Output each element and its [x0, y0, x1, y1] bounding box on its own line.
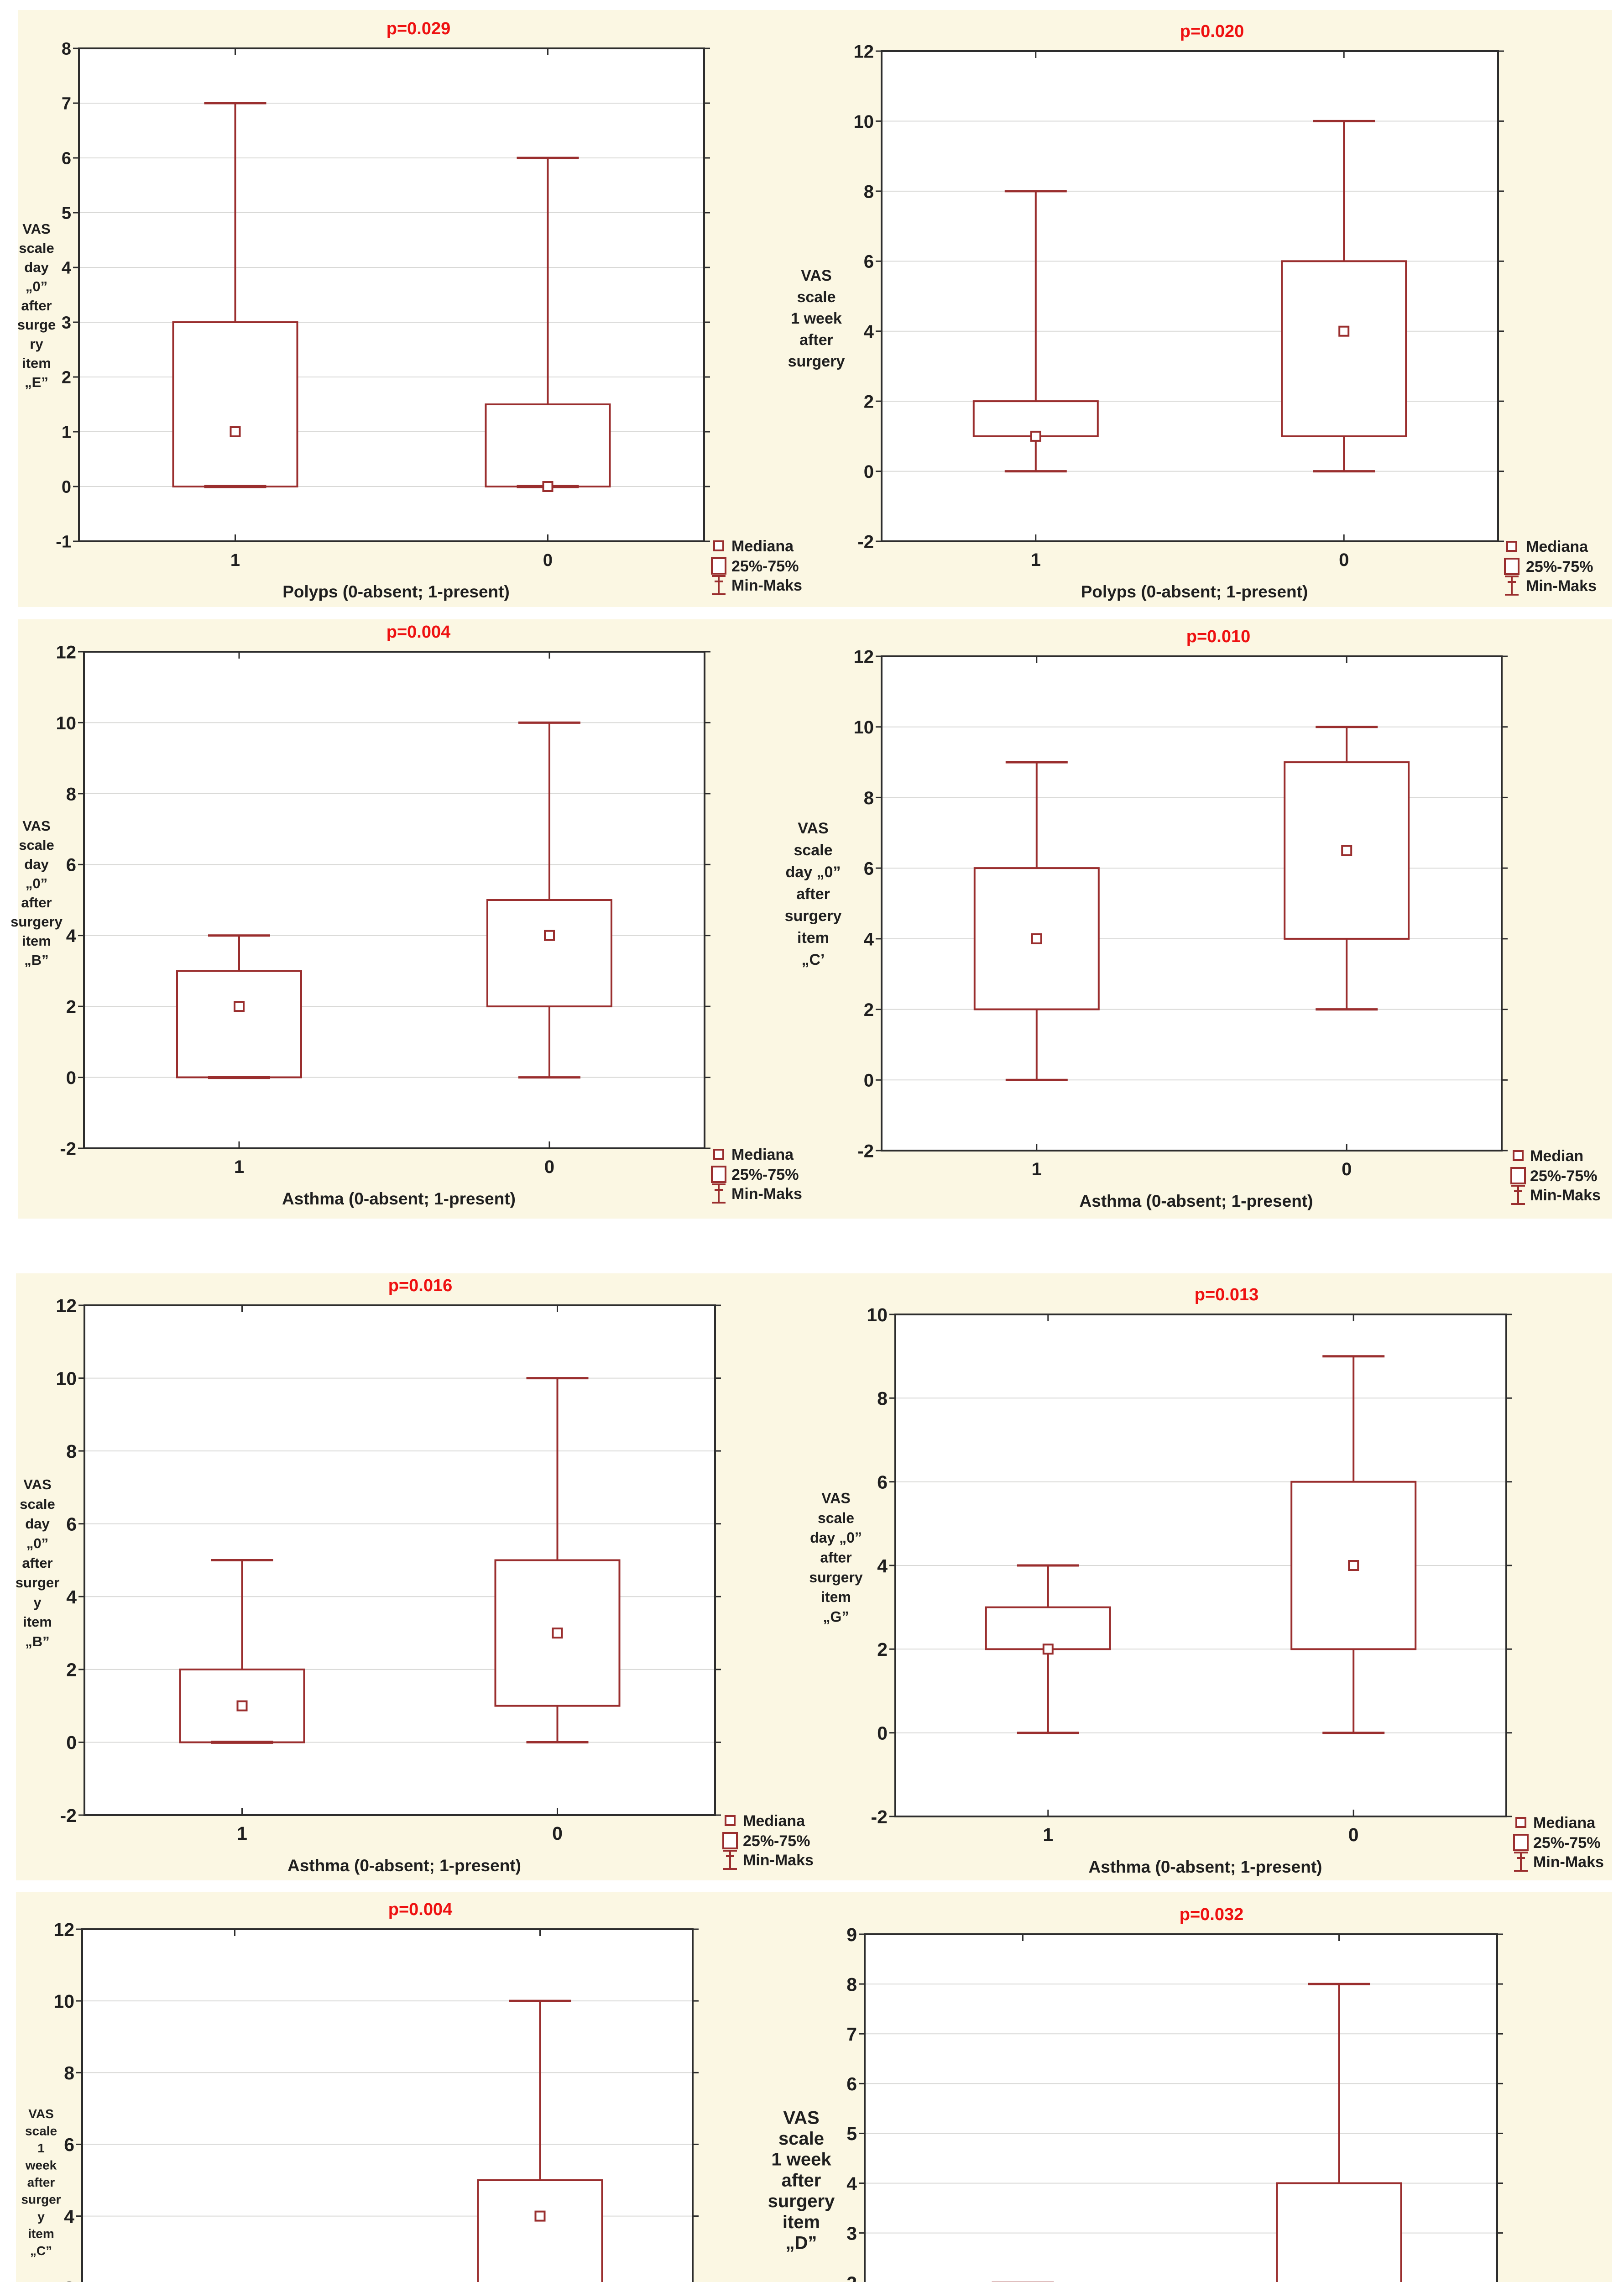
svg-text:8: 8	[62, 40, 71, 59]
svg-text:6: 6	[66, 855, 76, 875]
svg-text:Min-Maks: Min-Maks	[1526, 577, 1597, 595]
svg-text:2: 2	[66, 1659, 77, 1680]
svg-text:25%-75%: 25%-75%	[1526, 558, 1593, 576]
svg-text:Mediana: Mediana	[743, 1812, 805, 1830]
svg-text:10: 10	[56, 1368, 77, 1389]
svg-text:1: 1	[237, 1823, 247, 1844]
svg-text:8: 8	[64, 2062, 74, 2083]
svg-text:1: 1	[230, 551, 240, 570]
svg-text:Polyps (0-absent; 1-present): Polyps (0-absent; 1-present)	[1081, 582, 1308, 601]
svg-text:12: 12	[854, 647, 874, 667]
svg-text:2: 2	[64, 2278, 74, 2282]
svg-text:Min-Maks: Min-Maks	[743, 1852, 814, 1869]
svg-text:4: 4	[864, 929, 874, 949]
svg-text:p=0.016: p=0.016	[388, 1276, 453, 1295]
svg-text:8: 8	[877, 1388, 888, 1409]
svg-text:2: 2	[846, 2273, 857, 2282]
svg-text:p=0.004: p=0.004	[388, 1900, 453, 1919]
svg-text:4: 4	[877, 1555, 888, 1576]
svg-text:0: 0	[544, 1157, 554, 1177]
svg-text:10: 10	[854, 717, 874, 738]
svg-text:0: 0	[62, 478, 71, 497]
svg-text:2: 2	[864, 392, 874, 412]
svg-text:1: 1	[1031, 550, 1041, 570]
svg-text:25%-75%: 25%-75%	[1530, 1167, 1597, 1185]
svg-text:4: 4	[846, 2173, 857, 2194]
svg-text:4: 4	[64, 2206, 74, 2227]
svg-text:6: 6	[877, 1471, 888, 1492]
svg-text:Min-Maks: Min-Maks	[1533, 1853, 1604, 1871]
svg-text:Mediana: Mediana	[1526, 538, 1588, 555]
svg-text:p=0.029: p=0.029	[386, 19, 451, 38]
svg-text:0: 0	[66, 1068, 76, 1088]
svg-text:10: 10	[56, 713, 77, 733]
svg-text:0: 0	[864, 1071, 874, 1091]
svg-text:6: 6	[62, 149, 71, 168]
svg-text:4: 4	[66, 1586, 77, 1607]
svg-text:VASscaleday„0”aftersurgeryitem: VASscaleday„0”aftersurgeryitem„E”	[17, 221, 56, 390]
svg-text:Mediana: Mediana	[1533, 1814, 1596, 1832]
svg-text:10: 10	[854, 112, 874, 132]
svg-text:Asthma (0-absent; 1-present): Asthma (0-absent; 1-present)	[282, 1189, 516, 1208]
svg-text:p=0.020: p=0.020	[1180, 22, 1244, 41]
svg-text:-2: -2	[857, 1141, 874, 1161]
svg-text:0: 0	[552, 1823, 563, 1844]
svg-text:8: 8	[66, 784, 76, 804]
svg-text:-2: -2	[60, 1139, 76, 1159]
svg-text:p=0.013: p=0.013	[1195, 1285, 1259, 1304]
svg-text:4: 4	[864, 322, 874, 342]
svg-text:1: 1	[1043, 1824, 1053, 1845]
svg-text:25%-75%: 25%-75%	[743, 1832, 810, 1850]
svg-text:7: 7	[62, 94, 71, 114]
svg-text:5: 5	[846, 2123, 857, 2144]
svg-text:4: 4	[66, 926, 77, 946]
svg-text:0: 0	[1339, 550, 1349, 570]
svg-text:-2: -2	[60, 1805, 77, 1826]
svg-text:Asthma (0-absent; 1-present): Asthma (0-absent; 1-present)	[1080, 1192, 1313, 1210]
svg-text:0: 0	[66, 1732, 77, 1753]
svg-text:8: 8	[864, 182, 874, 202]
svg-text:25%-75%: 25%-75%	[731, 558, 799, 575]
svg-text:10: 10	[867, 1304, 888, 1325]
svg-text:8: 8	[66, 1441, 77, 1462]
svg-text:Polyps (0-absent; 1-present): Polyps (0-absent; 1-present)	[282, 582, 510, 601]
svg-text:8: 8	[864, 788, 874, 808]
svg-text:6: 6	[864, 252, 874, 272]
svg-text:0: 0	[1342, 1159, 1352, 1179]
svg-text:7: 7	[846, 2024, 857, 2045]
svg-text:2: 2	[877, 1639, 888, 1660]
svg-text:2: 2	[864, 1000, 874, 1020]
svg-text:12: 12	[56, 1295, 77, 1316]
svg-text:1: 1	[234, 1157, 244, 1177]
svg-text:Mediana: Mediana	[731, 1146, 794, 1163]
svg-text:Min-Maks: Min-Maks	[1530, 1187, 1601, 1204]
svg-text:12: 12	[56, 642, 77, 662]
svg-text:0: 0	[543, 551, 553, 570]
svg-text:9: 9	[846, 1924, 857, 1945]
svg-text:Mediana: Mediana	[731, 538, 794, 555]
svg-text:8: 8	[846, 1974, 857, 1995]
svg-text:-1: -1	[56, 533, 71, 552]
svg-text:Median: Median	[1530, 1147, 1583, 1165]
svg-text:0: 0	[1348, 1824, 1359, 1845]
svg-text:4: 4	[62, 259, 71, 278]
svg-text:12: 12	[53, 1919, 74, 1940]
svg-text:0: 0	[864, 462, 874, 482]
svg-text:Asthma (0-absent; 1-present): Asthma (0-absent; 1-present)	[1089, 1858, 1322, 1876]
svg-text:p=0.032: p=0.032	[1180, 1905, 1244, 1924]
svg-text:6: 6	[864, 859, 874, 879]
svg-text:2: 2	[66, 997, 76, 1017]
svg-text:p=0.004: p=0.004	[386, 623, 451, 642]
svg-text:3: 3	[62, 314, 71, 333]
svg-text:Asthma (0-absent; 1-present): Asthma (0-absent; 1-present)	[287, 1856, 521, 1875]
svg-text:25%-75%: 25%-75%	[1533, 1834, 1600, 1852]
svg-text:5: 5	[62, 204, 71, 223]
svg-text:1: 1	[1032, 1159, 1042, 1179]
svg-text:Min-Maks: Min-Maks	[731, 577, 802, 594]
svg-text:6: 6	[66, 1514, 77, 1535]
svg-text:3: 3	[846, 2223, 857, 2244]
svg-text:1: 1	[62, 423, 71, 442]
svg-text:6: 6	[846, 2073, 857, 2094]
svg-text:-2: -2	[857, 532, 874, 552]
svg-text:0: 0	[877, 1722, 888, 1743]
svg-text:-2: -2	[871, 1806, 888, 1827]
svg-text:10: 10	[53, 1991, 74, 2012]
svg-text:12: 12	[854, 42, 874, 62]
svg-text:p=0.010: p=0.010	[1186, 627, 1251, 646]
svg-text:6: 6	[64, 2134, 74, 2155]
svg-text:25%-75%: 25%-75%	[731, 1166, 799, 1183]
svg-text:Min-Maks: Min-Maks	[731, 1185, 802, 1203]
svg-text:2: 2	[62, 368, 71, 387]
